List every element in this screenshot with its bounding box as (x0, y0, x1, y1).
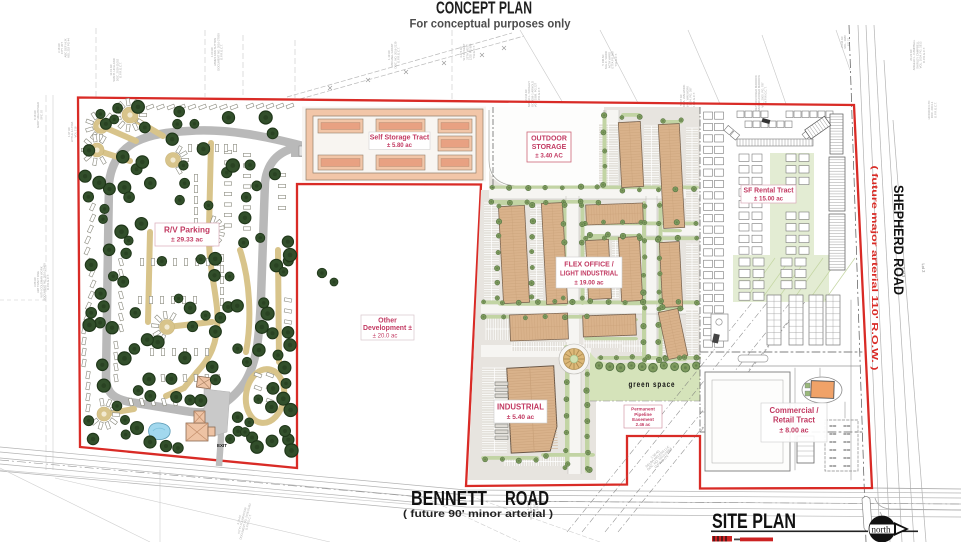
svg-text:± 19.00 ac: ± 19.00 ac (574, 280, 604, 287)
svg-text:EXIT: EXIT (217, 443, 227, 448)
svg-text:± 29.33 ac: ± 29.33 ac (171, 237, 203, 244)
svg-text:LIGHT INDUSTRIAL: LIGHT INDUSTRIAL (560, 271, 619, 278)
svg-text:O.P.R.G.C.T.: O.P.R.G.C.T. (397, 47, 401, 63)
svg-text:BENNETT: BENNETT (411, 488, 487, 510)
svg-text:SITE PLAN: SITE PLAN (712, 510, 796, 533)
svg-text:O.P.R.G.C.T.: O.P.R.G.C.T. (537, 87, 541, 103)
svg-text:O.P.R.G.C.T.: O.P.R.G.C.T. (933, 102, 937, 118)
svg-text:VOL 218 PG 44: VOL 218 PG 44 (67, 38, 71, 58)
svg-text:S of 3: S of 3 (901, 267, 906, 278)
svg-text:Permanent: Permanent (631, 407, 655, 412)
svg-text:± 8.00 ac: ± 8.00 ac (779, 428, 808, 435)
svg-text:Lot 2: Lot 2 (921, 263, 926, 273)
svg-text:north: north (872, 525, 891, 535)
svg-text:± 5.80 ac: ± 5.80 ac (387, 143, 413, 149)
svg-text:ROAD: ROAD (505, 488, 549, 510)
svg-text:W.P.W.G.C.T.: W.P.W.G.C.T. (764, 86, 768, 103)
svg-text:Commercial /: Commercial / (770, 406, 820, 415)
svg-text:± 15.00 ac: ± 15.00 ac (754, 196, 784, 203)
svg-text:SPC JS: SPC JS (39, 110, 43, 120)
svg-text:SF Rental Tract: SF Rental Tract (744, 188, 795, 195)
svg-text:Other: Other (378, 318, 397, 325)
svg-text:T.W.G.C.T.: T.W.G.C.T. (614, 53, 618, 67)
svg-text:( future major arterial 110': ( future major arterial 110' R.O.W. ) (870, 166, 880, 371)
svg-text:O.P.R.G.C.T.: O.P.R.G.C.T. (46, 274, 50, 290)
svg-text:FLEX OFFICE /: FLEX OFFICE / (564, 262, 613, 269)
svg-text:± 20.0 ac: ± 20.0 ac (373, 334, 398, 340)
svg-text:green space: green space (629, 380, 676, 389)
svg-text:( future 90' minor arterial ): ( future 90' minor arterial ) (403, 509, 553, 520)
svg-text:O.P.R.G.C.T.: O.P.R.G.C.T. (692, 92, 696, 108)
svg-text:OUTDOOR: OUTDOOR (531, 136, 567, 143)
svg-text:O.P.R.G.C.T.: O.P.R.G.C.T. (119, 62, 123, 78)
svg-text:O.P.R.G.C.T.: O.P.R.G.C.T. (922, 47, 926, 63)
svg-text:VOL 218: VOL 218 (73, 126, 77, 137)
svg-text:Development ±: Development ± (363, 325, 412, 332)
svg-text:± 3.40 AC: ± 3.40 AC (535, 153, 563, 160)
svg-text:For conceptual purposes only: For conceptual purposes only (410, 17, 571, 31)
svg-text:CONCEPT PLAN: CONCEPT PLAN (436, 0, 532, 18)
svg-text:O.P.R.G.C.T.: O.P.R.G.C.T. (220, 44, 224, 60)
svg-text:R/V Parking: R/V Parking (164, 226, 210, 235)
svg-text:INDUSTRIAL: INDUSTRIAL (497, 403, 544, 412)
svg-text:T.W.G.C.T.: T.W.G.C.T. (472, 45, 476, 59)
svg-text:STORAGE: STORAGE (532, 144, 567, 151)
svg-text:SHEPHERD ROAD: SHEPHERD ROAD (891, 185, 906, 295)
svg-text:2.46 ac: 2.46 ac (636, 422, 651, 427)
svg-text:± 5.40 ac: ± 5.40 ac (507, 414, 535, 421)
svg-text:Self Storage Tract: Self Storage Tract (370, 135, 430, 142)
svg-text:Retail Tract: Retail Tract (773, 416, 815, 425)
